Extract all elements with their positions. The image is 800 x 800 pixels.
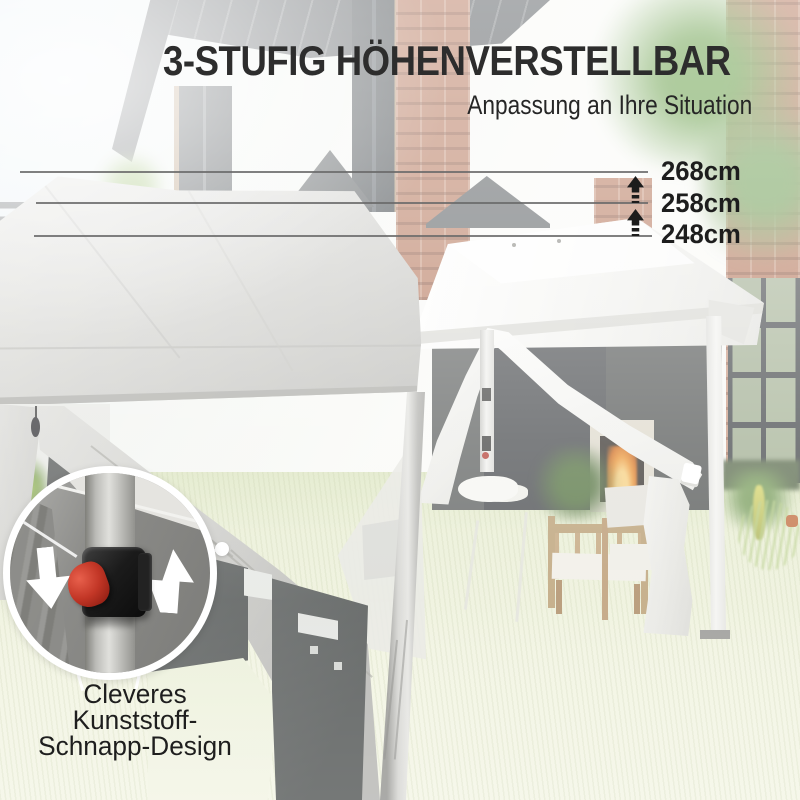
- height-line-268: [20, 171, 648, 173]
- inset-caption: Cleveres Kunststoff- Schnapp-Design: [17, 681, 254, 759]
- height-label-258: 258cm: [661, 190, 741, 217]
- height-label-248: 248cm: [661, 221, 741, 248]
- height-label-268: 268cm: [661, 158, 741, 185]
- detail-circle-inset: [3, 466, 217, 680]
- detail-circle-content: [10, 473, 210, 673]
- height-line-258: [36, 202, 648, 204]
- clamp-flange: [138, 553, 152, 611]
- page-subtitle: Anpassung an Ihre Situation: [467, 92, 752, 119]
- caption-line-3: Schnapp-Design: [17, 733, 254, 759]
- callout-dot: [215, 542, 229, 556]
- page-title: 3-STUFIG HÖHENVERSTELLBAR: [163, 40, 731, 82]
- caption-line-2: Kunststoff-: [17, 707, 254, 733]
- height-line-248: [34, 235, 652, 237]
- product-feature-graphic: 3-STUFIG HÖHENVERSTELLBAR Anpassung an I…: [0, 0, 800, 800]
- caption-line-1: Cleveres: [17, 681, 254, 707]
